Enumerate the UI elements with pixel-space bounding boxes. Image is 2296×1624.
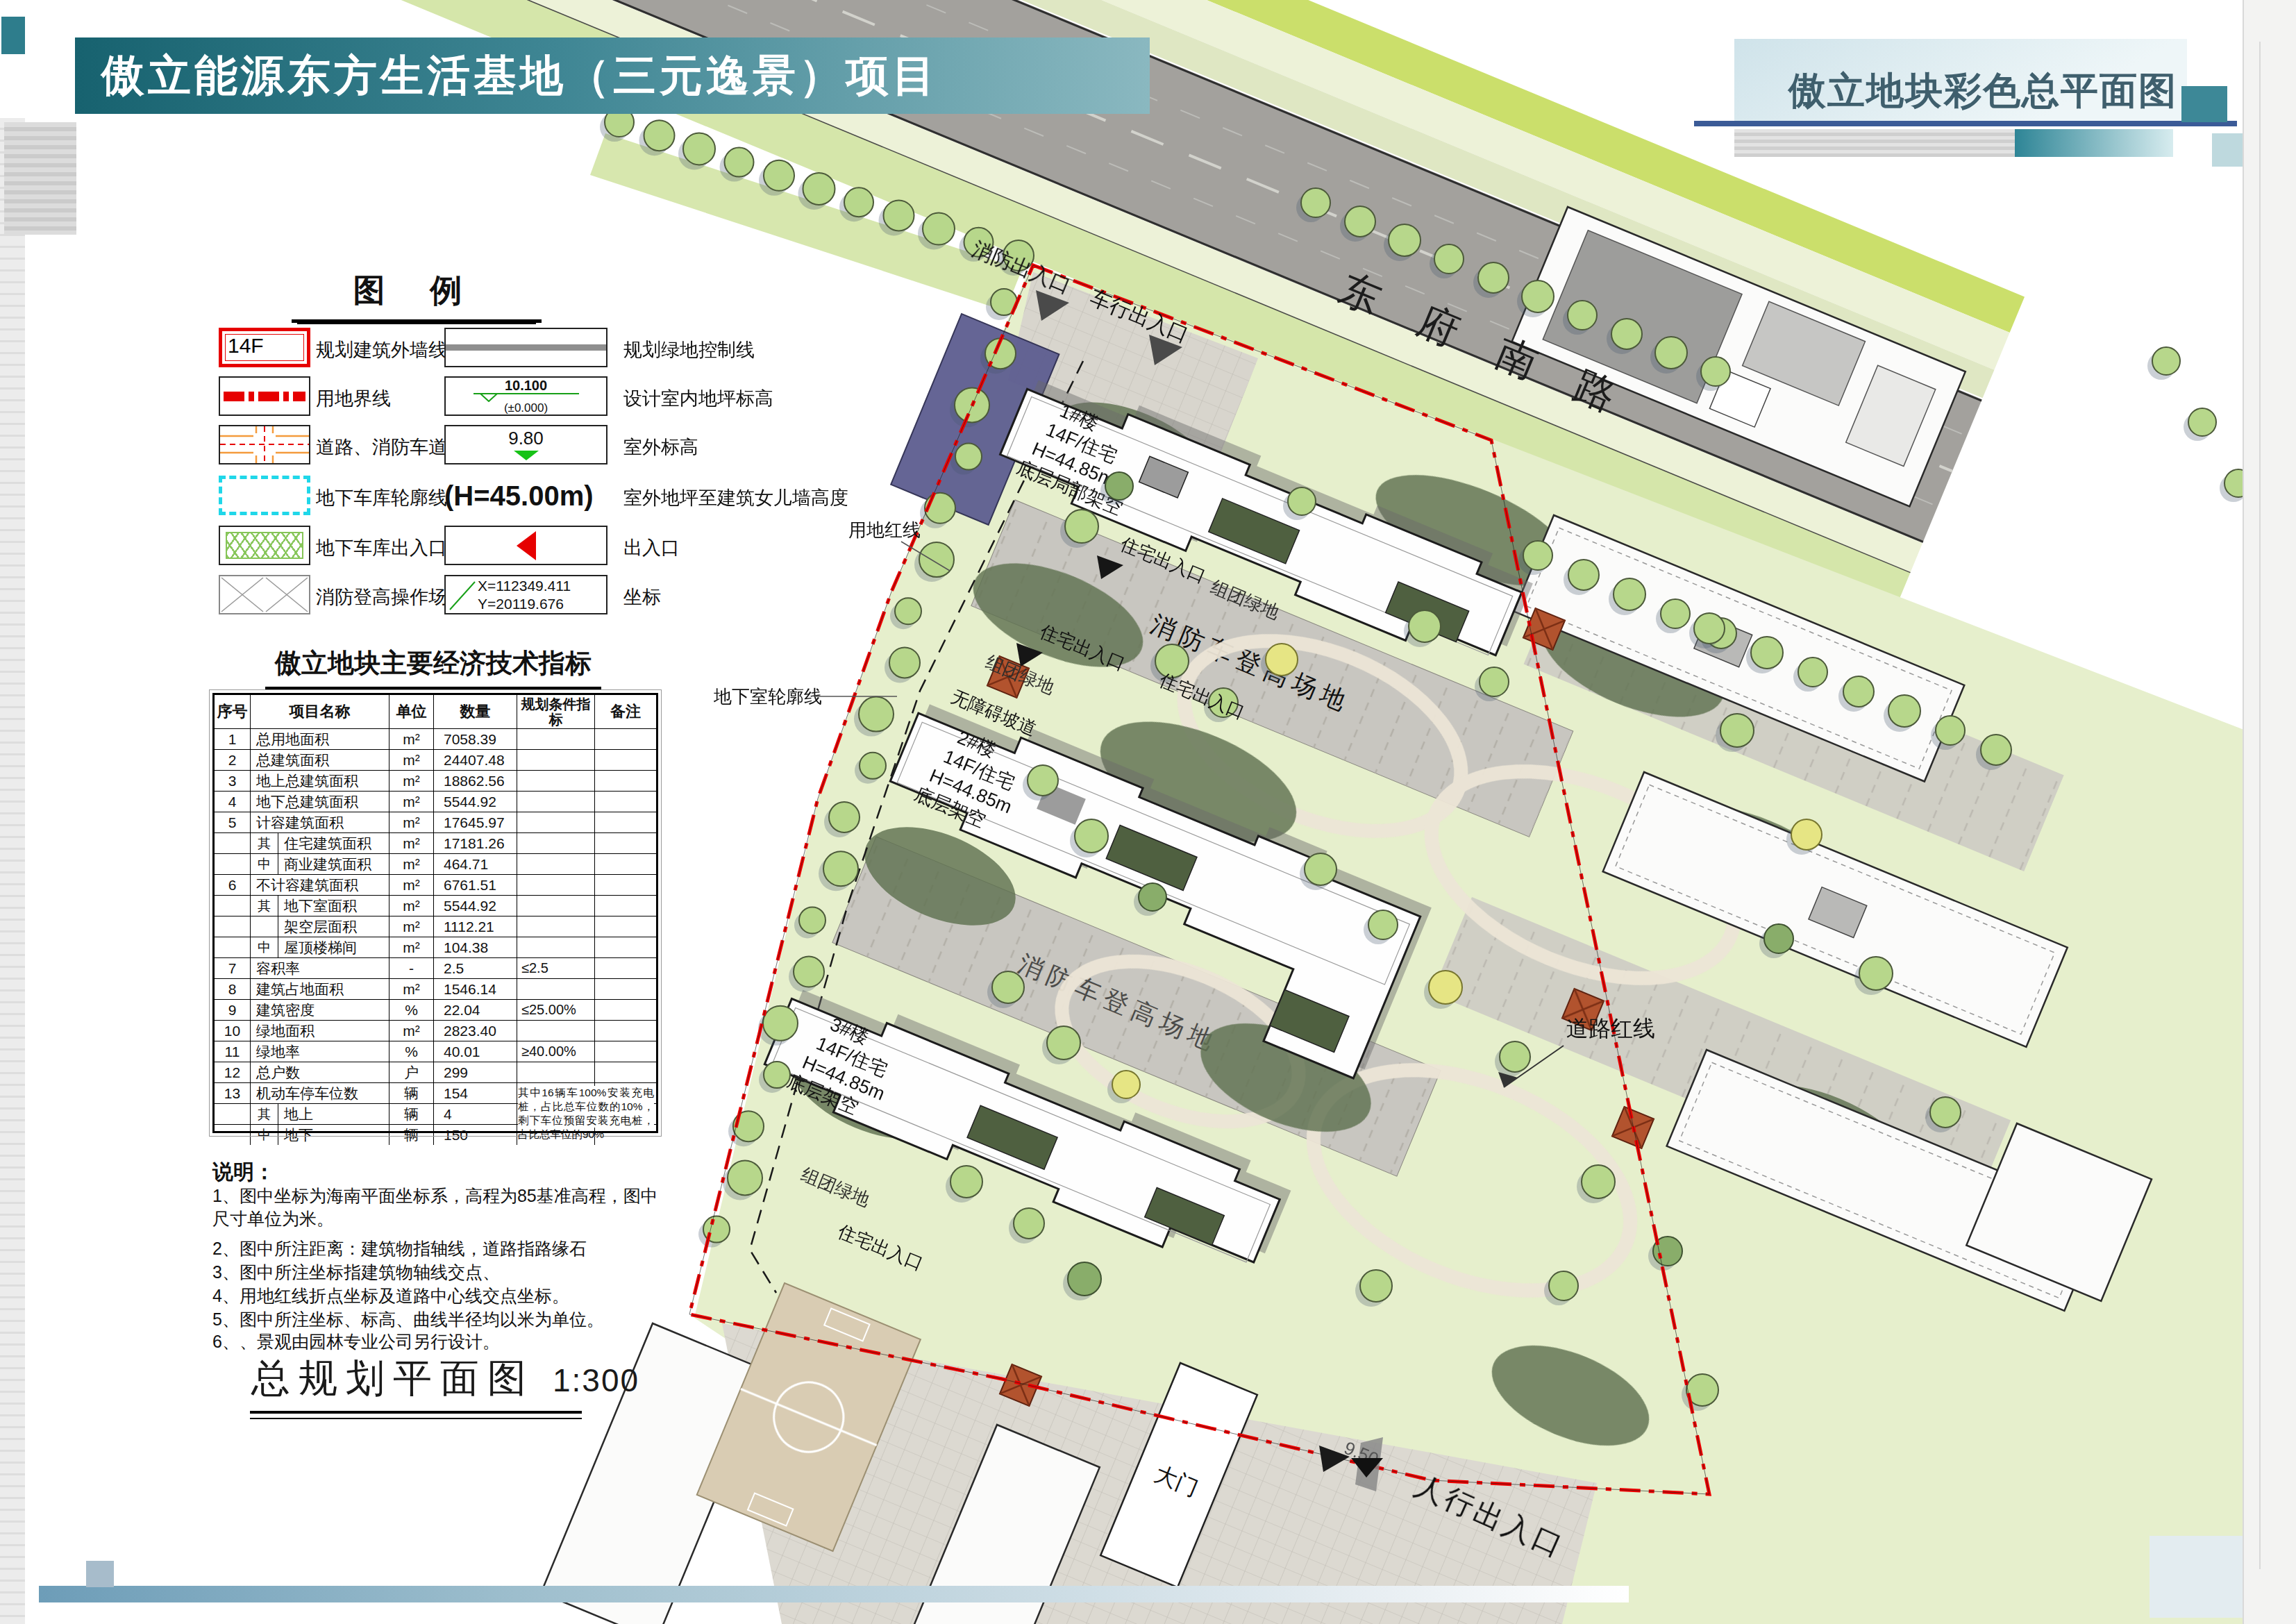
tree-icon <box>2152 347 2180 375</box>
table-cell: 绿地率 <box>251 1041 389 1062</box>
table-cell: 地下总建筑面积 <box>251 792 389 812</box>
table-cell <box>215 916 251 937</box>
drawing-title-text: 总规划平面图 <box>251 1356 535 1400</box>
legend-label: 用地界线 <box>316 386 391 411</box>
tree-icon <box>1843 676 1874 707</box>
tree-icon <box>1655 337 1687 369</box>
label-site-red-line: 用地红线 <box>848 519 921 540</box>
table-cell: 住宅建筑面积 <box>278 833 389 853</box>
tree-icon <box>889 647 920 678</box>
table-cell <box>215 833 251 853</box>
decor-square <box>1 17 25 54</box>
table-cell <box>595 1041 656 1062</box>
tree-icon <box>1798 658 1827 687</box>
coordinate-x: X=112349.411 <box>478 577 571 595</box>
table-cell <box>215 896 251 916</box>
table-cell: 户 <box>389 1062 434 1082</box>
table-cell: 464.71 <box>434 854 517 874</box>
table-cell <box>595 896 656 916</box>
legend-label: 设计室内地坪标高 <box>623 386 773 411</box>
table-cell: 地下室面积 <box>278 896 389 916</box>
table-cell <box>595 1021 656 1041</box>
table-row: 中屋顶楼梯间m²104.38 <box>215 937 656 957</box>
legend-label: 道路、消防车道 <box>316 435 447 460</box>
table-cell <box>595 854 656 874</box>
table-cell <box>595 1000 656 1020</box>
divider-line <box>1694 121 2237 126</box>
table-cell: 10 <box>215 1021 251 1041</box>
table-cell: 104.38 <box>434 937 517 957</box>
tree-icon <box>1112 1071 1140 1098</box>
paper-edge-right <box>2243 0 2296 1624</box>
table-cell: 地下 <box>278 1125 389 1145</box>
legend-symbol-green-control <box>444 328 607 367</box>
table-cell: m² <box>389 750 434 770</box>
tree-icon <box>764 160 794 191</box>
table-cell <box>215 1104 251 1124</box>
tree-icon <box>1522 281 1554 312</box>
table-cell <box>595 958 656 978</box>
legend-symbol-indoor-level: 10.100 (±0.000) <box>444 376 607 416</box>
table-cell <box>215 1125 251 1145</box>
legend-symbol-garage-entrance <box>219 526 310 565</box>
table-cell <box>595 771 656 791</box>
tree-icon <box>1611 319 1642 349</box>
table-cell: 建筑密度 <box>251 1000 389 1020</box>
table-cell: 17181.26 <box>434 833 517 853</box>
table-row: 10绿地面积m²2823.40 <box>215 1020 656 1041</box>
table-cell: 地上 <box>278 1104 389 1124</box>
table-cell: m² <box>389 937 434 957</box>
drawing-title-underline <box>250 1418 582 1419</box>
table-title: 傲立地块主要经济技术指标 <box>212 646 654 689</box>
table-row: 3地上总建筑面积m²18862.56 <box>215 770 656 791</box>
table-cell: 容积率 <box>251 958 389 978</box>
drawing-name-panel: 傲立地块彩色总平面图 <box>1734 39 2187 121</box>
tree-icon <box>1305 853 1336 885</box>
table-cell <box>595 937 656 957</box>
sheet: 消防车登高场地 消防车登高场地 <box>0 0 2296 1624</box>
tree-icon <box>725 148 754 177</box>
legend-floors-text: 14F <box>228 334 264 358</box>
table-cell <box>517 896 595 916</box>
decor-square <box>86 1561 114 1587</box>
label-road-red-line: 道路红线 <box>1566 1016 1655 1041</box>
table-cell: ≤2.5 <box>517 958 595 978</box>
legend-symbol-outdoor-level: 9.80 <box>444 425 607 464</box>
table-cell: m² <box>389 1021 434 1041</box>
table-row: 11绿地率%40.01≥40.00% <box>215 1041 656 1062</box>
legend-label: 规划绿地控制线 <box>623 337 755 362</box>
tree-icon <box>1751 637 1783 669</box>
table-cell: % <box>389 1041 434 1062</box>
tree-icon <box>1434 244 1464 274</box>
table-cell <box>215 937 251 957</box>
table-cell: m² <box>389 833 434 853</box>
tree-icon <box>1065 510 1098 543</box>
table-cell: 154 <box>434 1083 517 1103</box>
tree-icon <box>794 957 824 987</box>
drawing-scale: 1:300 <box>553 1362 639 1398</box>
table-cell <box>595 833 656 853</box>
tree-icon <box>1888 695 1920 727</box>
table-cell <box>517 833 595 853</box>
tree-icon <box>683 133 715 165</box>
table-cell: 2.5 <box>434 958 517 978</box>
table-row: 其住宅建筑面积m²17181.26 <box>215 832 656 853</box>
tree-icon <box>803 173 835 205</box>
table-cell: m² <box>389 875 434 895</box>
table-cell: 5544.92 <box>434 792 517 812</box>
note-item: 5、图中所注坐标、标高、曲线半径均以米为单位。 <box>212 1308 671 1331</box>
legend-label: 室外地坪至建筑女儿墙高度 <box>623 485 848 510</box>
table-cell <box>517 1062 595 1082</box>
legend-symbol-coordinate: X=112349.411 Y=20119.676 <box>444 575 607 614</box>
tree-icon <box>1429 971 1462 1004</box>
green-triangle-icon <box>511 449 542 462</box>
table-cell: % <box>389 1000 434 1020</box>
tree-icon <box>1568 560 1599 590</box>
table-row: 5计容建筑面积m²17645.97 <box>215 812 656 832</box>
table-cell: 总建筑面积 <box>251 750 389 770</box>
table-cell: 其 <box>251 896 278 916</box>
note-item: 1、图中坐标为海南平面坐标系，高程为85基准高程，图中尺寸单位为米。 <box>212 1184 671 1230</box>
tree-icon <box>1478 262 1509 293</box>
tree-icon <box>728 1160 762 1195</box>
table-cell: 1112.21 <box>434 916 517 937</box>
legend-symbol-road <box>219 425 310 464</box>
paper-edge-left <box>0 118 25 1624</box>
tree-icon <box>1936 716 1965 745</box>
tree-icon <box>919 542 954 577</box>
parking-note: 其中16辆车100%安装充电桩，占比总车位数的10%，剩下车位预留安装充电桩，占… <box>518 1086 654 1128</box>
table-cell: 地上总建筑面积 <box>251 771 389 791</box>
table-cell: 总用地面积 <box>251 729 389 749</box>
tree-icon <box>1720 714 1754 747</box>
note-item: 2、图中所注距离：建筑物指轴线，道路指路缘石 <box>212 1237 671 1260</box>
table-cell: 6761.51 <box>434 875 517 895</box>
tree-icon <box>992 971 1024 1003</box>
tree-icon <box>644 120 675 151</box>
table-cell: m² <box>389 916 434 937</box>
paper-edge-line <box>2259 42 2261 1569</box>
table-cell: 24407.48 <box>434 750 517 770</box>
table-header-cell: 项目名称 <box>251 695 389 728</box>
tree-icon <box>1389 224 1421 256</box>
table-cell: m² <box>389 771 434 791</box>
legend-symbol-land-boundary <box>219 376 310 416</box>
indicator-table: 序号 项目名称 单位 数量 规划条件指标 备注 1总用地面积m²7058.392… <box>212 693 658 1133</box>
table-cell: 1 <box>215 729 251 749</box>
table-cell <box>517 750 595 770</box>
table-cell: 辆 <box>389 1104 434 1124</box>
table-cell <box>517 771 595 791</box>
table-cell: 8 <box>215 979 251 999</box>
table-row: 架空层面积m²1112.21 <box>215 916 656 937</box>
decor-square <box>2212 133 2243 167</box>
table-cell: 5544.92 <box>434 896 517 916</box>
tree-icon <box>829 802 860 832</box>
decor-square <box>2181 86 2227 122</box>
level-value: 9.80 <box>508 428 544 449</box>
table-header-row: 序号 项目名称 单位 数量 规划条件指标 备注 <box>215 695 656 728</box>
table-row: 8建筑占地面积m²1546.14 <box>215 978 656 999</box>
table-cell: 7 <box>215 958 251 978</box>
drawing-title: 总规划平面图1:300 <box>251 1353 639 1405</box>
table-cell: 11 <box>215 1041 251 1062</box>
table-cell <box>517 916 595 937</box>
table-cell: 辆 <box>389 1125 434 1145</box>
table-cell: 中 <box>251 937 278 957</box>
table-cell: m² <box>389 792 434 812</box>
tree-icon <box>1549 1271 1578 1300</box>
tree-icon <box>1028 765 1058 796</box>
table-cell: m² <box>389 729 434 749</box>
table-cell: 150 <box>434 1125 517 1145</box>
table-cell: 3 <box>215 771 251 791</box>
drawing-title-underline <box>250 1411 582 1414</box>
legend-label: 地下车库轮廓线 <box>316 485 447 510</box>
table-cell: 中 <box>251 1125 278 1145</box>
table-cell <box>517 1021 595 1041</box>
tree-icon <box>955 444 982 470</box>
tree-icon <box>1288 487 1316 515</box>
tree-icon <box>950 1166 982 1198</box>
tree-icon <box>1480 667 1509 696</box>
tree-icon <box>1764 924 1793 953</box>
table-cell: 绿地面积 <box>251 1021 389 1041</box>
tree-icon <box>1523 541 1552 570</box>
table-header-cell: 单位 <box>389 695 434 728</box>
table-cell: 中 <box>251 854 278 874</box>
table-cell <box>517 875 595 895</box>
table-row: 4地下总建筑面积m²5544.92 <box>215 791 656 812</box>
tree-icon <box>1345 206 1375 237</box>
tree-icon <box>1694 613 1725 644</box>
legend-label: 坐标 <box>623 585 661 610</box>
note-item: 3、图中所注坐标指建筑物轴线交点、 <box>212 1261 671 1284</box>
table-cell: 屋顶楼梯间 <box>278 937 389 957</box>
table-body: 1总用地面积m²7058.392总建筑面积m²24407.483地上总建筑面积m… <box>215 728 656 1145</box>
level-line-icon <box>471 392 582 402</box>
tree-icon <box>884 200 914 231</box>
legend-label: 室外标高 <box>623 435 698 460</box>
table-header-cell: 数量 <box>434 695 517 728</box>
tree-icon <box>1368 910 1398 939</box>
table-cell: m² <box>389 854 434 874</box>
table-cell: ≥40.00% <box>517 1041 595 1062</box>
coordinate-y: Y=20119.676 <box>478 595 571 613</box>
table-cell: 其 <box>251 1104 278 1124</box>
table-cell <box>517 729 595 749</box>
table-cell: 12 <box>215 1062 251 1082</box>
tree-icon <box>859 697 894 732</box>
table-row: 2总建筑面积m²24407.48 <box>215 749 656 770</box>
tree-icon <box>860 753 886 779</box>
legend-label: 出入口 <box>623 535 680 560</box>
tree-icon <box>1266 644 1298 676</box>
table-row: 中商业建筑面积m²464.71 <box>215 853 656 874</box>
table-cell: - <box>389 958 434 978</box>
tree-icon <box>799 907 826 933</box>
note-item: 4、用地红线折点坐标及道路中心线交点坐标。 <box>212 1284 671 1307</box>
table-cell <box>595 792 656 812</box>
tree-icon <box>1014 1208 1044 1239</box>
table-cell: 其 <box>251 833 278 853</box>
decor-pane <box>2150 1536 2243 1618</box>
table-row: 7容积率-2.5≤2.5 <box>215 957 656 978</box>
table-cell <box>517 792 595 812</box>
table-row: 6不计容建筑面积m²6761.51 <box>215 874 656 895</box>
table-header-cell: 规划条件指标 <box>517 695 595 728</box>
label-basement-outline: 地下室轮廓线 <box>713 686 822 707</box>
table-cell: 2 <box>215 750 251 770</box>
decor-stripes <box>4 122 76 235</box>
tree-icon <box>1075 819 1108 853</box>
tree-icon <box>1930 1097 1961 1128</box>
tree-icon <box>1500 1041 1530 1072</box>
table-cell: ≤25.00% <box>517 1000 595 1020</box>
legend-symbol-garage-outline <box>219 476 310 515</box>
road-intersection-icon <box>220 426 309 463</box>
table-row: 其地下室面积m²5544.92 <box>215 895 656 916</box>
table-row: 1总用地面积m²7058.39 <box>215 728 656 749</box>
table-cell: 13 <box>215 1083 251 1103</box>
table-cell <box>215 854 251 874</box>
table-cell <box>595 875 656 895</box>
legend-label: 地下车库出入口 <box>316 535 447 560</box>
table-cell: 1546.14 <box>434 979 517 999</box>
table-cell: 商业建筑面积 <box>278 854 389 874</box>
tree-icon <box>1981 735 2011 765</box>
table-cell <box>595 979 656 999</box>
table-cell: 5 <box>215 812 251 832</box>
table-cell <box>595 750 656 770</box>
table-cell <box>517 812 595 832</box>
table-cell: 2823.40 <box>434 1021 517 1041</box>
table-cell: 18862.56 <box>434 771 517 791</box>
tree-icon <box>823 851 858 886</box>
table-cell: 4 <box>215 792 251 812</box>
legend-symbol-fire-field <box>219 575 310 614</box>
notes-title: 说明： <box>212 1158 275 1187</box>
tree-icon <box>1409 610 1441 642</box>
table-cell <box>517 979 595 999</box>
table-row: 9建筑密度%22.04≤25.00% <box>215 999 656 1020</box>
table-cell: 建筑占地面积 <box>251 979 389 999</box>
tree-icon <box>1360 1270 1392 1302</box>
tree-icon <box>2188 408 2216 436</box>
cross-hatch-icon <box>220 576 309 613</box>
drawing-name: 傲立地块彩色总平面图 <box>1788 66 2177 117</box>
table-cell: 17645.97 <box>434 812 517 832</box>
legend-title: 图 例 <box>292 269 542 323</box>
tree-icon <box>1568 301 1597 330</box>
table-cell: 9 <box>215 1000 251 1020</box>
legend-label: 消防登高操作场地 <box>316 585 466 610</box>
table-cell <box>517 854 595 874</box>
tree-icon <box>895 598 921 624</box>
table-cell <box>251 916 278 937</box>
table-cell: m² <box>389 812 434 832</box>
sheet-title: 傲立能源东方生活基地（三元逸景）项目 <box>101 47 939 105</box>
tree-icon <box>1105 472 1133 500</box>
red-entrance-arrow-icon <box>511 528 542 563</box>
table-cell: 4 <box>434 1104 517 1124</box>
table-cell: 299 <box>434 1062 517 1082</box>
table-cell <box>595 1125 656 1145</box>
legend-symbol-building-outline: 14F <box>219 328 310 367</box>
coordinate-leader-icon <box>446 576 478 613</box>
table-cell: 40.01 <box>434 1041 517 1062</box>
decor-bottom-bar <box>39 1586 1629 1602</box>
table-cell <box>595 916 656 937</box>
table-cell <box>595 729 656 749</box>
tree-icon <box>764 1062 790 1088</box>
table-cell: 辆 <box>389 1083 434 1103</box>
tree-icon <box>1791 819 1822 850</box>
tree-icon <box>1701 357 1730 386</box>
tree-icon <box>1068 1262 1101 1296</box>
tree-icon <box>763 1006 798 1041</box>
table-header-cell: 备注 <box>595 695 656 728</box>
table-cell: 架空层面积 <box>278 916 389 937</box>
table-cell: 7058.39 <box>434 729 517 749</box>
table-cell: 计容建筑面积 <box>251 812 389 832</box>
table-cell <box>595 812 656 832</box>
table-cell: m² <box>389 979 434 999</box>
table-cell: 22.04 <box>434 1000 517 1020</box>
tree-icon <box>1301 188 1330 217</box>
legend-symbol-entrance <box>444 526 607 565</box>
table-cell: 不计容建筑面积 <box>251 875 389 895</box>
decor-gradient <box>2015 129 2173 157</box>
tree-icon <box>1859 957 1893 990</box>
tree-icon <box>1582 1165 1615 1198</box>
sheet-title-bar: 傲立能源东方生活基地（三元逸景）项目 <box>75 37 1150 114</box>
tree-icon <box>1139 883 1166 911</box>
tree-icon <box>1661 599 1690 628</box>
table-cell <box>517 937 595 957</box>
legend-height-text: (H=45.00m) <box>444 480 594 512</box>
tree-icon <box>1614 578 1645 610</box>
table-cell: 机动车停车位数 <box>251 1083 389 1103</box>
table-cell <box>595 1062 656 1082</box>
tree-icon <box>923 213 955 245</box>
tree-icon <box>1047 1026 1080 1060</box>
tree-icon <box>844 187 873 217</box>
table-cell: 总户数 <box>251 1062 389 1082</box>
level-value: 10.100 <box>505 378 547 392</box>
table-cell: m² <box>389 896 434 916</box>
table-row: 12总户数户299 <box>215 1062 656 1082</box>
table-cell: 6 <box>215 875 251 895</box>
note-item: 6、、景观由园林专业公司另行设计。 <box>212 1330 671 1353</box>
table-header-cell: 序号 <box>215 695 251 728</box>
level-value2: (±0.000) <box>504 402 548 415</box>
